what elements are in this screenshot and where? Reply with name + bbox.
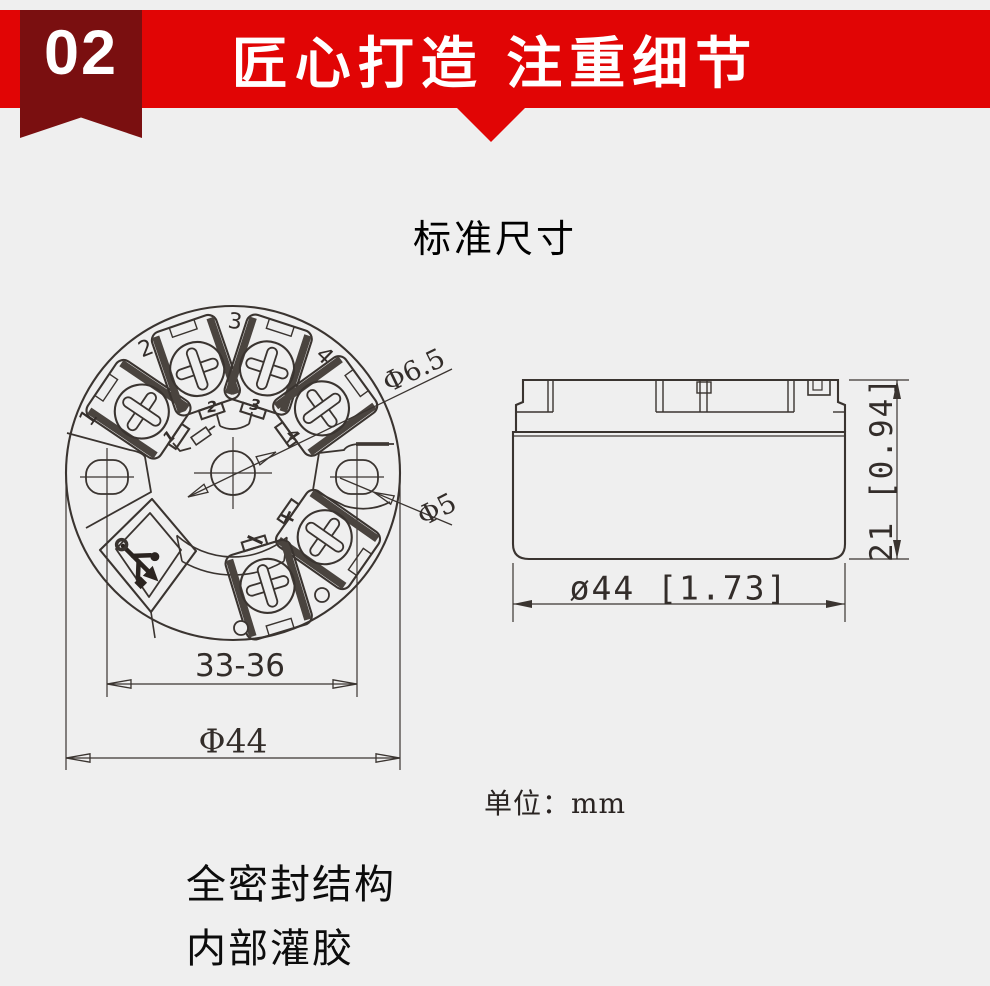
dim-label-diameter: ø44 [1.73] [570, 569, 789, 608]
terminal-label-1: 1 [75, 405, 104, 431]
resistor-symbol [191, 427, 211, 445]
dim-label-side-hole: Φ5 [412, 487, 461, 532]
side-body-outline [513, 432, 845, 559]
side-lip-outline [516, 380, 845, 432]
header-banner: 匠心打造 注重细节 02 [0, 10, 990, 108]
page: 匠心打造 注重细节 02 标准尺寸 [0, 0, 990, 986]
side-view-drawing: 21 [0.94] ø44 [1.73] [513, 376, 909, 622]
number-ribbon: 02 [20, 10, 142, 138]
terminal-label-3: 3 [226, 309, 243, 336]
dim-diameter: ø44 [1.73] [513, 563, 845, 622]
dim-hole-spacing: 33-36 [107, 648, 357, 688]
dim-label-center-hole: Φ6.5 [378, 343, 450, 399]
banner-number: 02 [44, 22, 118, 85]
dim-height: 21 [0.94] [849, 376, 909, 562]
dimension-drawing: 1 2 3 4 + − 1 2 [0, 290, 990, 790]
unit-note: 单位：mm [484, 782, 626, 822]
dim-label-hole-spacing: 33-36 [195, 648, 285, 684]
usb-icon [105, 527, 172, 594]
top-view-drawing: 1 2 3 4 + − 1 2 [66, 306, 462, 770]
dim-label-outer-diameter: Φ44 [198, 722, 267, 761]
section-title: 标准尺寸 [0, 208, 990, 263]
banner-title: 匠心打造 注重细节 [232, 19, 759, 100]
dim-label-height: 21 [0.94] [864, 376, 900, 562]
banner-pointer-triangle [457, 108, 525, 142]
pcb-hole-1 [234, 621, 248, 635]
feature-potted-interior: 内部灌胶 [186, 916, 354, 974]
feature-sealed-structure: 全密封结构 [186, 852, 396, 910]
pcb-hole-2 [315, 588, 329, 602]
